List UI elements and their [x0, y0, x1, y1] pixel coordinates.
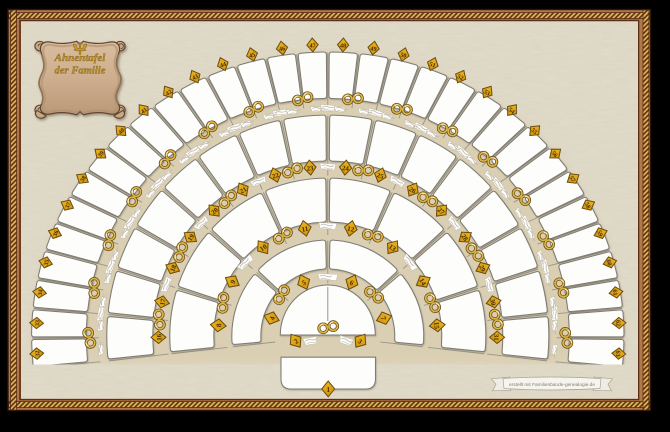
svg-text:1: 1	[326, 386, 330, 394]
svg-text:der Familie: der Familie	[55, 66, 106, 77]
svg-text:31: 31	[492, 334, 499, 341]
svg-text:15: 15	[432, 322, 441, 330]
svg-text:48: 48	[340, 43, 346, 49]
svg-text:32: 32	[35, 350, 41, 356]
svg-text:49: 49	[370, 46, 377, 53]
svg-text:62: 62	[614, 320, 620, 326]
svg-text:61: 61	[611, 289, 618, 296]
svg-text:33: 33	[35, 320, 41, 326]
svg-text:46: 46	[279, 46, 286, 53]
svg-text:Ahnentafel: Ahnentafel	[54, 52, 107, 64]
svg-text:erstellt mit Familienbande-gen: erstellt mit Familienbande-genealogie.de	[509, 382, 596, 387]
svg-text:47: 47	[309, 43, 315, 49]
svg-text:34: 34	[38, 289, 45, 296]
svg-text:63: 63	[614, 350, 620, 356]
svg-text:16: 16	[156, 333, 163, 340]
